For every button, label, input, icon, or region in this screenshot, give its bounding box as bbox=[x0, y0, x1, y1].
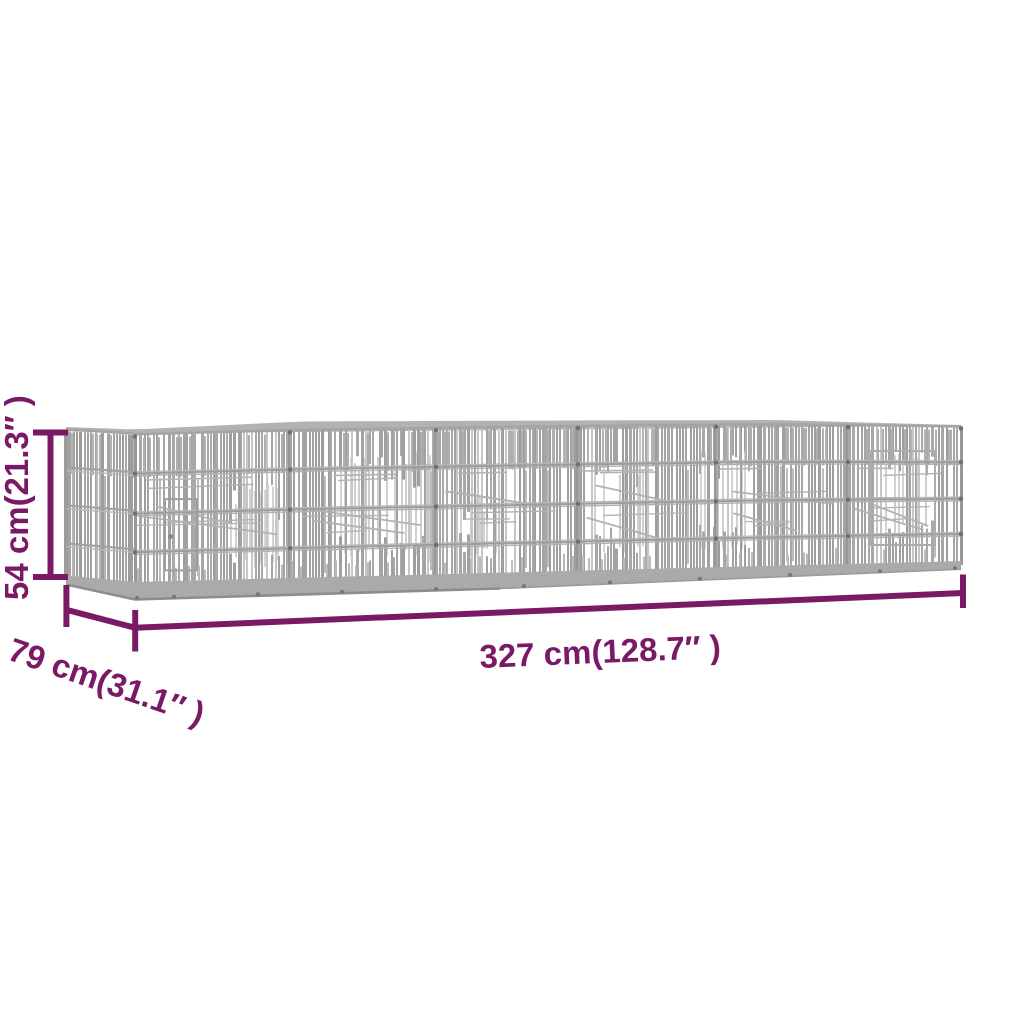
svg-text:54 cm(21.3″ ): 54 cm(21.3″ ) bbox=[0, 395, 35, 600]
